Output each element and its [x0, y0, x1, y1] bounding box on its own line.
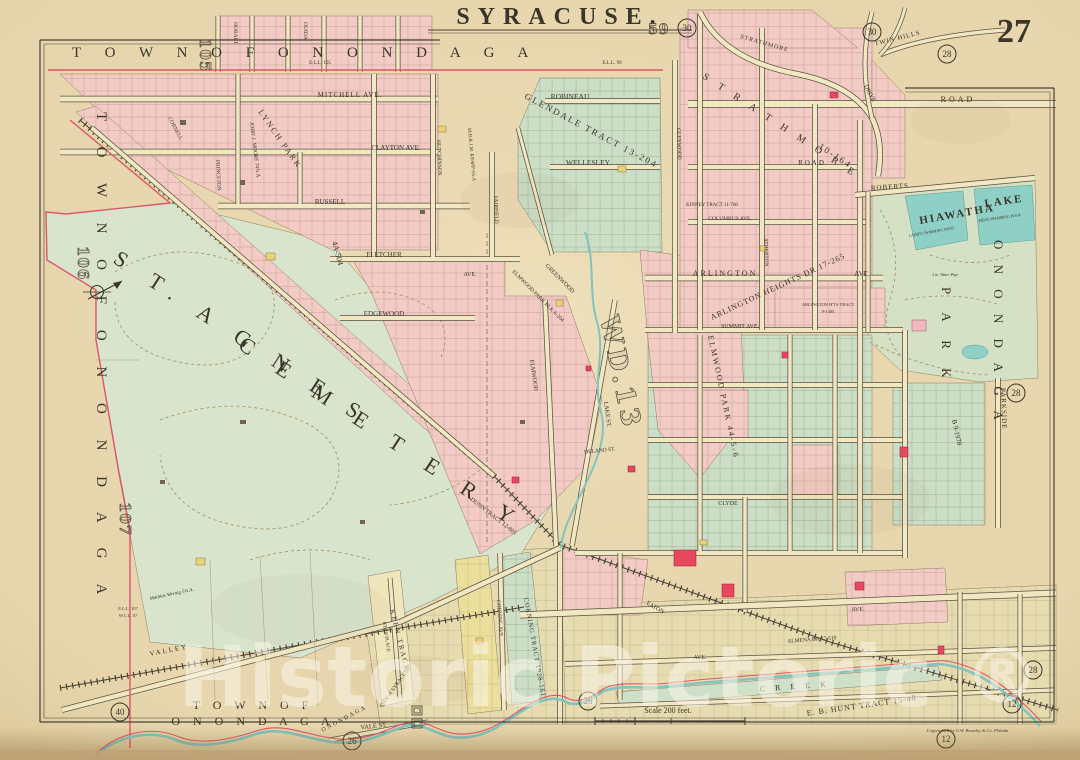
page-title: SYRACUSE. [456, 4, 663, 30]
arlington-tract-label-2: 9-1405 [822, 309, 835, 314]
map-canvas: SYRACUSE. 27 T O W N O F O N O N D A G A… [0, 0, 1080, 760]
park-label-2: P A R K [939, 287, 954, 386]
plate-number: 27 [997, 13, 1031, 50]
plate-ref-30-a: 30 [683, 23, 693, 33]
arlington-tract-label-1: ARLINGTON H'TS TRACT [802, 302, 855, 307]
watermark-registered-icon: ® [964, 631, 1040, 720]
boundary-note-ell99: E.L.L. 99 [602, 61, 622, 66]
park-pond [962, 345, 988, 359]
watermark-text: Historic Pictoric [178, 628, 932, 726]
street-label-ave-3: AVE. [851, 607, 865, 613]
section-number-106: 106 [74, 246, 92, 280]
street-label-glenwood: GLENWOOD [675, 128, 682, 160]
street-label-mitchell: MITCHELL AVE. [318, 91, 383, 99]
street-label-ouida: OUIDA [302, 22, 308, 40]
plate-ref-40: 40 [116, 707, 126, 717]
street-label-atherton: ATHERTON [762, 238, 769, 267]
street-label-clayton: CLAYTON AVE. [371, 144, 421, 152]
plate-ref-28-b: 28 [1012, 388, 1022, 398]
street-label-hobart: HOBART [232, 22, 238, 45]
street-label-hutchinson: HUTCHINSON [435, 140, 442, 176]
water-pipe-label: 2 in. Water Pipe [932, 272, 958, 277]
street-label-robineau: ROBINEAU [551, 92, 590, 101]
plate-ref-30-b: 30 [868, 27, 878, 37]
street-label-russell: RUSSELL [315, 198, 345, 206]
section-number-107: 107 [116, 502, 134, 536]
street-label-summit: SUMMIT AVE. [721, 324, 760, 330]
street-label-edgewood: EDGEWOOD [364, 310, 404, 318]
plate-ref-28-a: 28 [943, 49, 953, 59]
street-label-fletcher: FLETCHER [366, 251, 402, 259]
street-label-ave-1: AVE. [463, 272, 477, 278]
street-label-road-2: ROAD [798, 159, 826, 167]
kinney-tract-label: KINNEY TRACT 11-760 [686, 203, 738, 208]
street-label-fairfield: FAIRFIELD [492, 196, 499, 224]
street-label-columbus: COLUMBUS AVE. [708, 216, 752, 222]
watermark: Historic Pictoric ® [178, 628, 1040, 726]
street-label-arlington-ave: AVE. [854, 270, 869, 278]
town-label-left: T O W N O F O N O N D A G A [93, 112, 109, 605]
street-label-road-1: ROAD [941, 95, 976, 104]
section-number-59: 59 [648, 22, 669, 38]
boundary-note-wcl07: W.C.L. 07 [119, 613, 138, 618]
boundary-note-ell105: E.L.L. 105 [309, 61, 331, 66]
section-number-105: 105 [196, 38, 214, 72]
boundary-note-ell107: E.L.L. 107 [118, 606, 138, 611]
street-label-clyde: CLYDE [718, 501, 738, 507]
paper-edge [0, 750, 1080, 760]
atlas-map-page: SYRACUSE. 27 T O W N O F O N O N D A G A… [0, 0, 1080, 760]
street-label-arlington: ARLINGTON [693, 269, 758, 278]
street-label-wellesley: WELLESLEY [566, 158, 611, 167]
town-label-top: T O W N O F O N O N D A G A [72, 45, 538, 61]
